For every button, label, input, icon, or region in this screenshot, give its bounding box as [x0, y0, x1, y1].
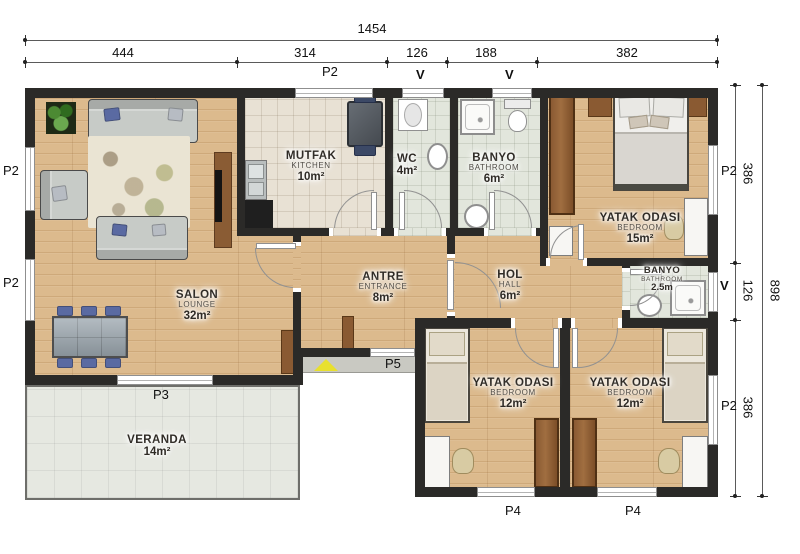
window-bathroom — [492, 88, 532, 98]
dim-dot — [715, 60, 719, 64]
window-veranda — [117, 375, 213, 385]
room-area: 6m² — [470, 290, 550, 302]
entrance-arrow-icon — [314, 359, 338, 371]
door-leaf — [489, 192, 495, 230]
room-label-hall: HOL HALL 6m² — [470, 269, 550, 302]
dim-dot — [715, 38, 719, 42]
room-area: 8m² — [333, 292, 433, 304]
wall-bedroom-left — [415, 318, 425, 497]
dim-right-3: 386 — [741, 388, 756, 428]
door-leaf — [572, 328, 578, 368]
desk — [682, 436, 708, 488]
window-bathroom2 — [708, 272, 718, 312]
marker-v-right: V — [720, 278, 729, 293]
room-label-entrance: ANTRE ENTRANCE 8m² — [333, 271, 433, 304]
dim-dot — [535, 60, 539, 64]
door-leaf — [399, 192, 405, 230]
room-label-kitchen: MUTFAK KITCHEN 10m² — [261, 150, 361, 183]
sofa-pillow — [152, 223, 167, 236]
dim-line — [25, 40, 718, 41]
room-area: 10m² — [261, 171, 361, 183]
room-area: 6m² — [444, 173, 544, 185]
room-label-wc: WC 4m² — [382, 153, 432, 178]
room-name-en: BEDROOM — [590, 224, 690, 233]
window-salon-left-1 — [25, 147, 35, 211]
window-bedroom3-bottom — [597, 487, 657, 497]
room-name-en: BEDROOM — [580, 389, 680, 398]
dim-dot — [23, 38, 27, 42]
window-salon-left-2 — [25, 259, 35, 321]
dim-seg-4: 188 — [466, 45, 506, 60]
bathroom-sink — [464, 204, 489, 229]
accent-pillow — [649, 115, 669, 130]
marker-v-top-2: V — [505, 67, 514, 82]
dim-top-total: 1454 — [352, 21, 392, 36]
window-kitchen — [295, 88, 373, 98]
door-leaf — [447, 260, 454, 310]
squat-toilet-bowl — [404, 103, 422, 127]
exterior-void — [293, 373, 415, 487]
tv-icon — [215, 170, 222, 222]
wall-entrance-stub — [293, 348, 303, 385]
dim-seg-2: 314 — [285, 45, 325, 60]
armchair-pillow — [51, 185, 68, 202]
room-area: 2.5m — [622, 283, 702, 293]
wall-exterior-bottom — [415, 487, 718, 497]
shower-tray — [460, 99, 495, 135]
wall-kitchen-left — [237, 98, 245, 236]
doorway-salon — [293, 242, 301, 292]
bed-blanket — [427, 362, 467, 420]
bed-pillow — [667, 332, 703, 356]
desk-chair — [658, 448, 680, 474]
plant-icon — [44, 100, 78, 136]
room-area: 12m² — [580, 398, 680, 410]
wall-exterior-left — [25, 88, 35, 385]
dining-chair — [105, 306, 121, 316]
marker-p2-top: P2 — [322, 64, 338, 79]
kitchen-table — [347, 101, 383, 147]
room-label-salon: SALON LOUNGE 32m² — [147, 289, 247, 322]
dining-chair — [81, 358, 97, 368]
dim-line — [735, 85, 736, 497]
dim-right-total: 898 — [768, 271, 783, 311]
window-bedroom1 — [708, 145, 718, 215]
room-name-en: BEDROOM — [463, 389, 563, 398]
dim-dot — [733, 318, 737, 322]
window-wc — [402, 88, 444, 98]
nightstand — [686, 97, 707, 117]
rug — [88, 136, 190, 228]
room-name-en: HALL — [470, 281, 550, 290]
doorway-bedroom2 — [511, 318, 562, 328]
dining-chair — [105, 358, 121, 368]
floor-plan: SALON LOUNGE 32m² MUTFAK KITCHEN 10m² WC… — [0, 0, 800, 554]
dim-seg-5: 382 — [607, 45, 647, 60]
marker-p2-right-1: P2 — [721, 163, 737, 178]
dim-right-2: 126 — [741, 271, 756, 311]
dim-line — [762, 85, 763, 497]
room-label-bedroom3: YATAK ODASI BEDROOM 12m² — [580, 377, 680, 410]
sofa-pillow — [167, 107, 183, 121]
room-area: 12m² — [463, 398, 563, 410]
dim-dot — [733, 261, 737, 265]
dim-seg-3: 126 — [397, 45, 437, 60]
dining-chair — [81, 306, 97, 316]
dining-table — [52, 316, 128, 358]
room-label-bathroom: BANYO BATHROOM 6m² — [444, 152, 544, 185]
bed-foot-rail — [615, 184, 687, 190]
room-label-bedroom2: YATAK ODASI BEDROOM 12m² — [463, 377, 563, 410]
marker-p5: P5 — [385, 356, 401, 371]
door-leaf — [553, 328, 559, 368]
dim-dot — [445, 60, 449, 64]
marker-p2-right-2: P2 — [721, 398, 737, 413]
room-name: VERANDA — [107, 434, 207, 446]
dim-dot — [235, 60, 239, 64]
room-label-veranda: VERANDA 14m² — [107, 434, 207, 459]
door-leaf — [371, 192, 377, 230]
dim-right-1: 386 — [741, 154, 756, 194]
window-bedroom2-bottom — [477, 487, 535, 497]
door-leaf — [578, 224, 584, 260]
room-name: WC — [382, 153, 432, 165]
wardrobe — [534, 418, 559, 488]
room-area: 4m² — [382, 165, 432, 177]
room-label-bedroom1: YATAK ODASI BEDROOM 15m² — [590, 212, 690, 245]
room-name-en: ENTRANCE — [333, 283, 433, 292]
dim-line — [25, 62, 718, 63]
toilet-tank — [504, 99, 531, 109]
nightstand — [588, 97, 612, 117]
desk — [424, 436, 450, 488]
room-label-bathroom2: BANYO BATHROOM 2.5m — [622, 266, 702, 294]
sofa-small — [96, 216, 188, 260]
door-leaf — [256, 243, 296, 249]
entry-cabinet — [342, 316, 354, 352]
desk-chair — [452, 448, 474, 474]
room-name: BANYO — [622, 266, 702, 276]
dim-dot — [760, 494, 764, 498]
dim-dot — [385, 60, 389, 64]
dim-seg-1: 444 — [103, 45, 143, 60]
window-bedroom3 — [708, 375, 718, 445]
kitchen-sink-basin — [248, 182, 264, 196]
room-name-en: LOUNGE — [147, 301, 247, 310]
dim-dot — [733, 83, 737, 87]
room-area: 14m² — [107, 446, 207, 458]
dim-dot — [760, 83, 764, 87]
room-name-en: KITCHEN — [261, 162, 361, 171]
marker-v-top-1: V — [416, 67, 425, 82]
bed-pillow — [652, 96, 684, 118]
toilet-bowl — [508, 110, 527, 132]
wardrobe — [572, 418, 597, 488]
marker-p4-2: P4 — [625, 503, 641, 518]
bed-pillow — [429, 332, 465, 356]
room-area: 32m² — [147, 310, 247, 322]
doorway-bedroom3 — [571, 318, 622, 328]
dining-chair — [57, 358, 73, 368]
sofa-pillow — [103, 107, 120, 122]
dim-dot — [23, 60, 27, 64]
room-area: 15m² — [590, 233, 690, 245]
room-name-en: BATHROOM — [444, 164, 544, 173]
dim-dot — [733, 494, 737, 498]
marker-p4-1: P4 — [505, 503, 521, 518]
bed-blanket — [615, 132, 687, 184]
marker-p3: P3 — [153, 387, 169, 402]
dining-chair — [57, 306, 73, 316]
wardrobe — [549, 93, 575, 215]
sofa-pillow — [111, 223, 127, 237]
marker-p2-left-2: P2 — [3, 275, 19, 290]
marker-p2-left-1: P2 — [3, 163, 19, 178]
